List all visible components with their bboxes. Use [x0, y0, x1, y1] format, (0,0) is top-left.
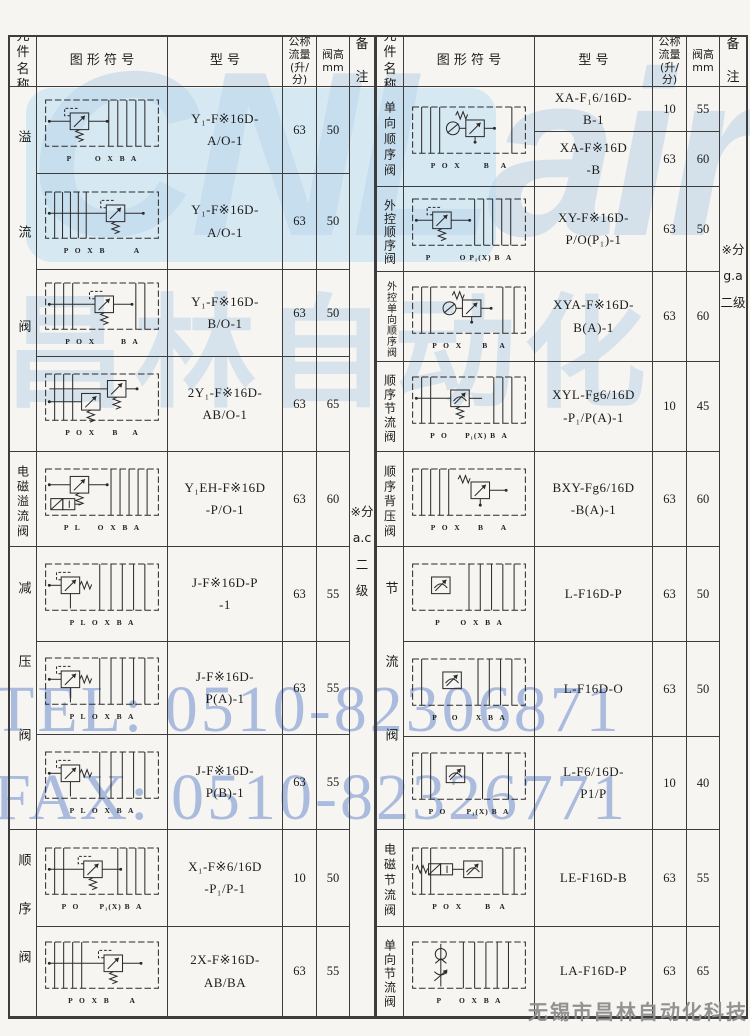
port-labels: P O X B A: [68, 996, 136, 1005]
component-name-cell: 顺序节流阀: [377, 362, 404, 452]
flow-cell: 10: [283, 830, 317, 927]
model-cell: XY-F※16D- P/O(P₁)-1: [535, 187, 653, 272]
flow-cell: 63: [653, 642, 687, 737]
sequence-valve-symbol: [408, 196, 530, 252]
symbol-cell: P O X B A: [404, 927, 535, 1017]
note-text: ※分 g.a 二级: [720, 237, 745, 316]
throttle-valve-symbol: [408, 750, 530, 806]
symbol-cell: P O X B A: [37, 174, 168, 270]
symbol-cell: P O X B A: [37, 927, 168, 1017]
model-cell: XYA-F※16D- B(A)-1: [535, 272, 653, 362]
height-cell: 55: [687, 830, 720, 927]
height-cell: 50: [317, 830, 350, 927]
model-cell: 2X-F※16D- AB/BA: [168, 927, 283, 1017]
header-model: 型 号: [535, 37, 653, 87]
symbol-cell: P O X B A: [404, 272, 535, 362]
component-name-cell: 减压阀: [10, 547, 37, 830]
note-text: ※分 a.c 二级: [350, 499, 374, 604]
header-graphic-symbol: 图 形 符 号: [404, 37, 535, 87]
model-cell: XYL-Fg6/16D -P₁/P(A)-1: [535, 362, 653, 452]
height-cell: 40: [687, 737, 720, 830]
model-cell: J-F※16D- P(B)-1: [168, 735, 283, 830]
header-graphic-symbol: 图 形 符 号: [37, 37, 168, 87]
model-cell: Y₁-F※16D- A/O-1: [168, 174, 283, 270]
header-valve-height: 阀高 mm: [317, 37, 350, 87]
backpressure-valve-symbol: [408, 466, 530, 522]
flow-cell: 63: [283, 642, 317, 735]
catalog-page: CNLair 昌林自动化 TEL: 0510-82306871 FAX: 051…: [0, 0, 750, 1036]
port-labels: P O X B A: [432, 341, 506, 350]
flow-cell: 63: [653, 132, 687, 187]
port-labels: P O X B A: [437, 996, 502, 1005]
port-labels: P O X B A: [67, 154, 138, 163]
symbol-cell: P O X B A: [404, 547, 535, 642]
component-name-cell: 外控顺序阀: [377, 187, 404, 272]
note-cell: ※分 a.c 二级: [350, 87, 374, 1017]
height-cell: 55: [317, 927, 350, 1017]
check-sequence-valve-symbol: [408, 284, 530, 340]
component-name-cell: 节流阀: [377, 547, 404, 830]
flow-cell: 63: [653, 452, 687, 547]
model-cell: J-F※16D-P -1: [168, 547, 283, 642]
throttle-valve-symbol: [408, 561, 530, 617]
left-table: 元 件 名 称 图 形 符 号 型 号 公称 流量 (升/ 分) 阀高 mm 备…: [8, 35, 376, 1019]
solenoid-relief-valve-symbol: [41, 466, 163, 522]
height-cell: 55: [317, 547, 350, 642]
header-valve-height: 阀高 mm: [687, 37, 720, 87]
header-nominal-flow: 公称 流量 (升/ 分): [653, 37, 687, 87]
port-labels: P L O X B A: [70, 712, 135, 721]
sequence-valve-symbol: [41, 845, 163, 901]
flow-cell: 10: [653, 362, 687, 452]
port-labels: P O X B A: [431, 161, 507, 170]
header-model: 型 号: [168, 37, 283, 87]
height-cell: 55: [317, 642, 350, 735]
symbol-cell: P O X B A: [37, 270, 168, 357]
model-cell: L-F16D-O: [535, 642, 653, 737]
height-cell: 55: [687, 87, 720, 132]
component-name-cell: 电磁溢流阀: [10, 452, 37, 547]
header-component-name: 元 件 名 称: [377, 37, 404, 87]
note-cell: ※分 g.a 二级: [720, 87, 746, 1017]
port-labels: P O X B A: [64, 246, 140, 255]
right-table: 元 件 名 称 图 形 符 号 型 号 公称 流量 (升/ 分) 阀高 mm 备…: [375, 35, 748, 1019]
component-name-cell: 溢流阀: [10, 87, 37, 452]
symbol-cell: P O P₁(X) B A: [404, 362, 535, 452]
height-cell: 50: [317, 174, 350, 270]
symbol-cell: P O X B A: [37, 357, 168, 452]
port-labels: P L O X B A: [64, 523, 140, 532]
height-cell: 45: [687, 362, 720, 452]
port-labels: P L O X B A: [70, 618, 135, 627]
height-cell: 50: [317, 270, 350, 357]
model-cell: 2Y₁-F※16D- AB/O-1: [168, 357, 283, 452]
port-labels: P O X B A: [65, 428, 139, 437]
header-component-name: 元 件 名 称: [10, 37, 37, 87]
sequence-throttle-valve-symbol: [408, 374, 530, 430]
reducing-valve-symbol: [41, 749, 163, 805]
port-labels: P O P₁(X) B A: [430, 431, 508, 440]
port-labels: P O P₁(X) B A: [426, 253, 513, 262]
symbol-cell: P L O X B A: [37, 452, 168, 547]
height-cell: 60: [687, 132, 720, 187]
symbol-cell: P O X B A: [404, 87, 535, 187]
component-name-cell: 顺序背压阀: [377, 452, 404, 547]
double-relief-valve-symbol: [41, 371, 163, 427]
height-cell: 50: [687, 187, 720, 272]
port-labels: P O P₁(X) B A: [429, 807, 510, 816]
port-labels: P L O X B A: [70, 806, 135, 815]
reducing-valve-symbol: [41, 561, 163, 617]
component-name-cell: 外控单向顺序阀: [377, 272, 404, 362]
height-cell: 50: [687, 547, 720, 642]
flow-cell: 63: [283, 270, 317, 357]
reducing-valve-symbol: [41, 655, 163, 711]
height-cell: 50: [687, 642, 720, 737]
header-nominal-flow: 公称 流量 (升/ 分): [283, 37, 317, 87]
flow-cell: 63: [653, 830, 687, 927]
flow-cell: 63: [283, 735, 317, 830]
flow-cell: 63: [653, 187, 687, 272]
port-labels: P O X B A: [432, 713, 506, 722]
header-remarks: 备 注: [350, 37, 374, 87]
symbol-cell: P O X B A: [37, 87, 168, 174]
height-cell: 55: [317, 735, 350, 830]
height-cell: 50: [317, 87, 350, 174]
flow-cell: 63: [283, 927, 317, 1017]
flow-cell: 10: [653, 737, 687, 830]
model-cell: XA-F※16D -B: [535, 132, 653, 187]
model-cell: X₁-F※6/16D -P₁/P-1: [168, 830, 283, 927]
symbol-cell: P O P₁(X) B A: [404, 737, 535, 830]
model-cell: Y₁-F※16D- B/O-1: [168, 270, 283, 357]
symbol-cell: P O P₁(X) B A: [404, 187, 535, 272]
symbol-cell: P O X B A: [404, 452, 535, 547]
flow-cell: 63: [283, 87, 317, 174]
model-cell: Y₁EH-F※16D -P/O-1: [168, 452, 283, 547]
flow-cell: 63: [653, 547, 687, 642]
throttle-valve-symbol: [408, 656, 530, 712]
height-cell: 65: [317, 357, 350, 452]
check-sequence-valve-symbol: [408, 104, 530, 160]
relief-valve-symbol: [41, 939, 163, 995]
solenoid-throttle-valve-symbol: [408, 845, 530, 901]
flow-cell: 63: [283, 357, 317, 452]
company-watermark: 无锡市昌林自动化科技: [528, 996, 748, 1025]
model-cell: J-F※16D- P(A)-1: [168, 642, 283, 735]
component-name-cell: 单向节流阀: [377, 927, 404, 1017]
port-labels: P O X B A: [435, 618, 503, 627]
port-labels: P O X B A: [65, 337, 139, 346]
model-cell: BXY-Fg6/16D -B(A)-1: [535, 452, 653, 547]
model-cell: LE-F16D-B: [535, 830, 653, 927]
component-name-cell: 电磁节流阀: [377, 830, 404, 927]
symbol-cell: P O P₁(X) B A: [37, 830, 168, 927]
symbol-cell: P L O X B A: [37, 547, 168, 642]
port-labels: P O X B A: [431, 523, 507, 532]
flow-cell: 63: [283, 547, 317, 642]
symbol-cell: P O X B A: [404, 830, 535, 927]
symbol-cell: P O X B A: [404, 642, 535, 737]
model-cell: L-F6/16D- P1/P: [535, 737, 653, 830]
port-labels: P O P₁(X) B A: [62, 902, 143, 911]
component-name-cell: 顺序阀: [10, 830, 37, 1017]
port-labels: P O X B A: [432, 902, 506, 911]
height-cell: 60: [687, 452, 720, 547]
model-cell: L-F16D-P: [535, 547, 653, 642]
symbol-cell: P L O X B A: [37, 735, 168, 830]
flow-cell: 63: [283, 174, 317, 270]
flow-cell: 63: [283, 452, 317, 547]
flow-cell: 10: [653, 87, 687, 132]
model-cell: Y₁-F※16D- A/O-1: [168, 87, 283, 174]
model-cell: XA-F₁6/16D- B-1: [535, 87, 653, 132]
relief-valve-symbol: [41, 189, 163, 245]
relief-valve-symbol: [41, 97, 163, 153]
check-throttle-valve-symbol: [408, 939, 530, 995]
flow-cell: 63: [653, 272, 687, 362]
header-remarks: 备 注: [720, 37, 746, 87]
height-cell: 60: [687, 272, 720, 362]
symbol-cell: P L O X B A: [37, 642, 168, 735]
height-cell: 60: [317, 452, 350, 547]
relief-valve-symbol: [41, 280, 163, 336]
component-name-cell: 单向顺序阀: [377, 87, 404, 187]
